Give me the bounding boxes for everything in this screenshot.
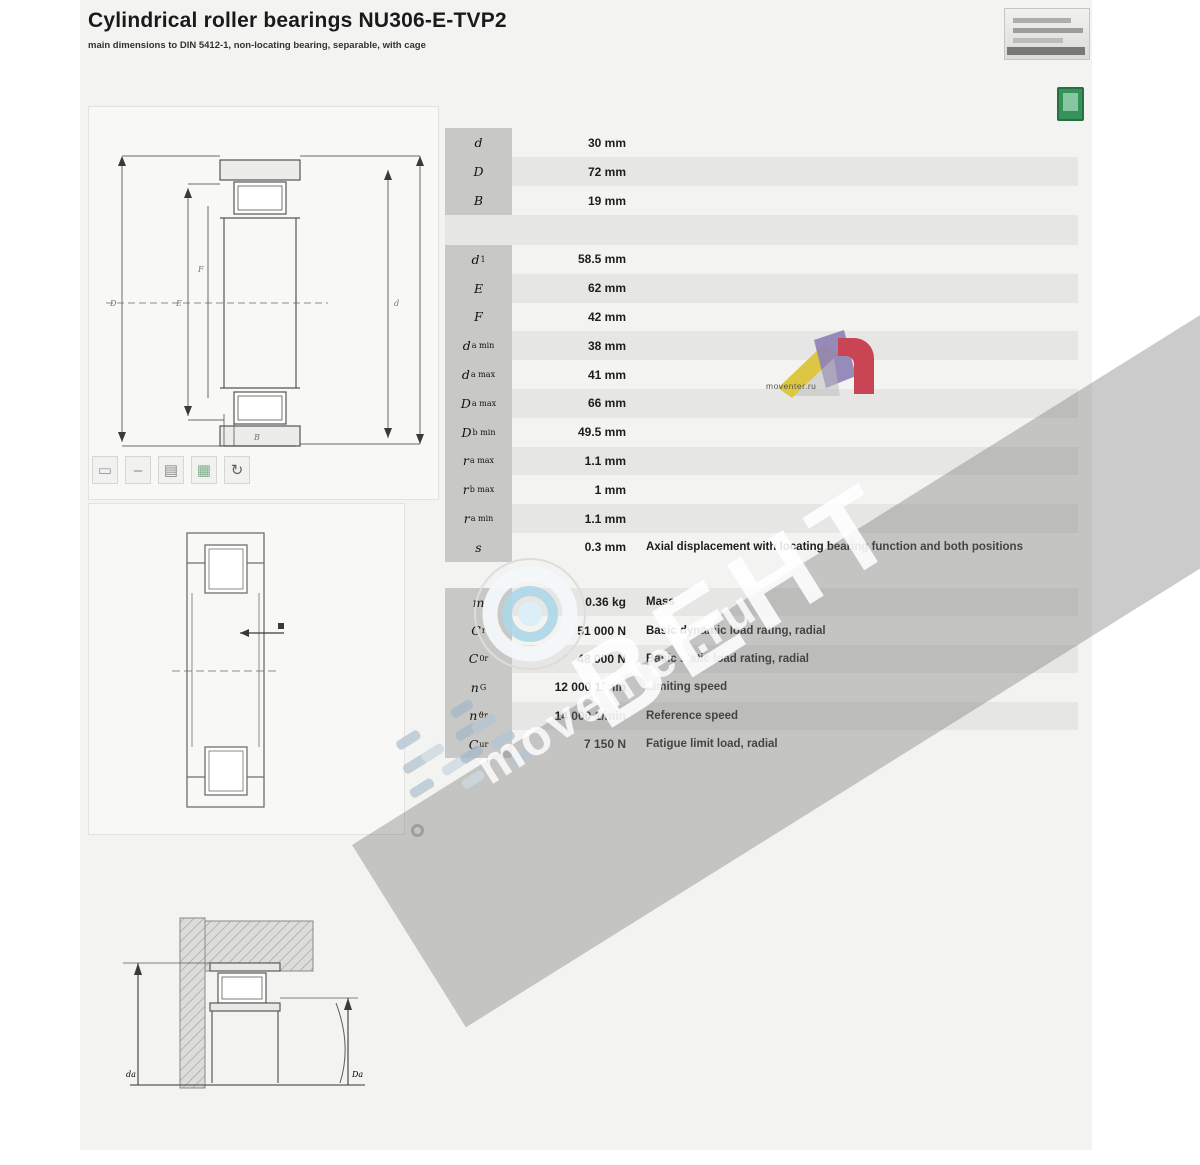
feature-icons-row: ▭–▤▦↻ [92,456,250,484]
table-row: Db min49.5 mm [445,418,1078,447]
main-dimensions-table: d30 mmD72 mmB19 mm [445,128,1078,215]
rotation-arrow-icon: ↻ [224,456,250,484]
watermark-caption: moventer.ru [766,381,816,391]
row-symbol: F [445,303,512,332]
row-value: 41 mm [512,368,632,382]
logo-line [1013,28,1083,33]
table-row: E62 mm [445,274,1078,303]
table-row: d158.5 mm [445,245,1078,274]
pattern-box-icon: ▤ [158,456,184,484]
table-gap-stripe [445,215,1078,245]
table-row: D72 mm [445,157,1078,186]
row-symbol: D [445,157,512,186]
row-value: 30 mm [512,136,632,150]
logo-line [1013,38,1063,43]
page-subtitle: main dimensions to DIN 5412-1, non-locat… [88,40,426,51]
table-row: B19 mm [445,186,1078,215]
row-value: 1.1 mm [512,512,632,526]
dim-label-E: E [175,299,182,308]
row-value: 66 mm [512,396,632,410]
dim-label-D: D [109,299,117,308]
dim-label-F: F [197,265,204,274]
section-pair-icon: ▭ [92,456,118,484]
row-symbol: Db min [445,418,512,447]
catalog-document-icon[interactable] [1057,87,1084,121]
catalog-document-icon-inner [1063,93,1078,111]
row-value: 42 mm [512,310,632,324]
row-symbol: ra min [445,504,512,533]
logo-line [1013,18,1071,23]
divider-icon: – [125,456,151,484]
row-symbol: E [445,274,512,303]
datasheet-page: Cylindrical roller bearings NU306-E-TVP2… [0,0,1200,1165]
row-value: 62 mm [512,281,632,295]
mounting-dimensions-drawing: da Da [100,893,400,1108]
row-value: 19 mm [512,194,632,208]
row-symbol: Da max [445,389,512,418]
row-value: 1.1 mm [512,454,632,468]
row-value: 1 mm [512,483,632,497]
dim-label-d: d [394,299,399,308]
row-symbol: da min [445,331,512,360]
lubrication-icon: ▦ [191,456,217,484]
row-symbol: B [445,186,512,215]
table-row: Da max66 mm [445,389,1078,418]
bearing-cross-section-drawing: D E F d B [88,108,437,452]
row-symbol: d1 [445,245,512,274]
page-title: Cylindrical roller bearings NU306-E-TVP2 [88,9,507,33]
row-symbol: da max [445,360,512,389]
dim-label-da: da [126,1070,136,1079]
row-value: 72 mm [512,165,632,179]
table-row: da max41 mm [445,360,1078,389]
table-row: F42 mm [445,303,1078,332]
logo-base-strip [1007,47,1085,55]
brand-logo [1004,8,1090,60]
table-row: d30 mm [445,128,1078,157]
row-symbol: ra max [445,447,512,476]
row-value: 49.5 mm [512,425,632,439]
dim-label-Da: Da [351,1070,363,1079]
row-symbol: rb max [445,475,512,504]
row-value: 58.5 mm [512,252,632,266]
row-symbol: d [445,128,512,157]
shop-color-logo [772,326,884,410]
dim-label-B: B [253,433,260,442]
row-value: 38 mm [512,339,632,353]
table-row: da min38 mm [445,331,1078,360]
